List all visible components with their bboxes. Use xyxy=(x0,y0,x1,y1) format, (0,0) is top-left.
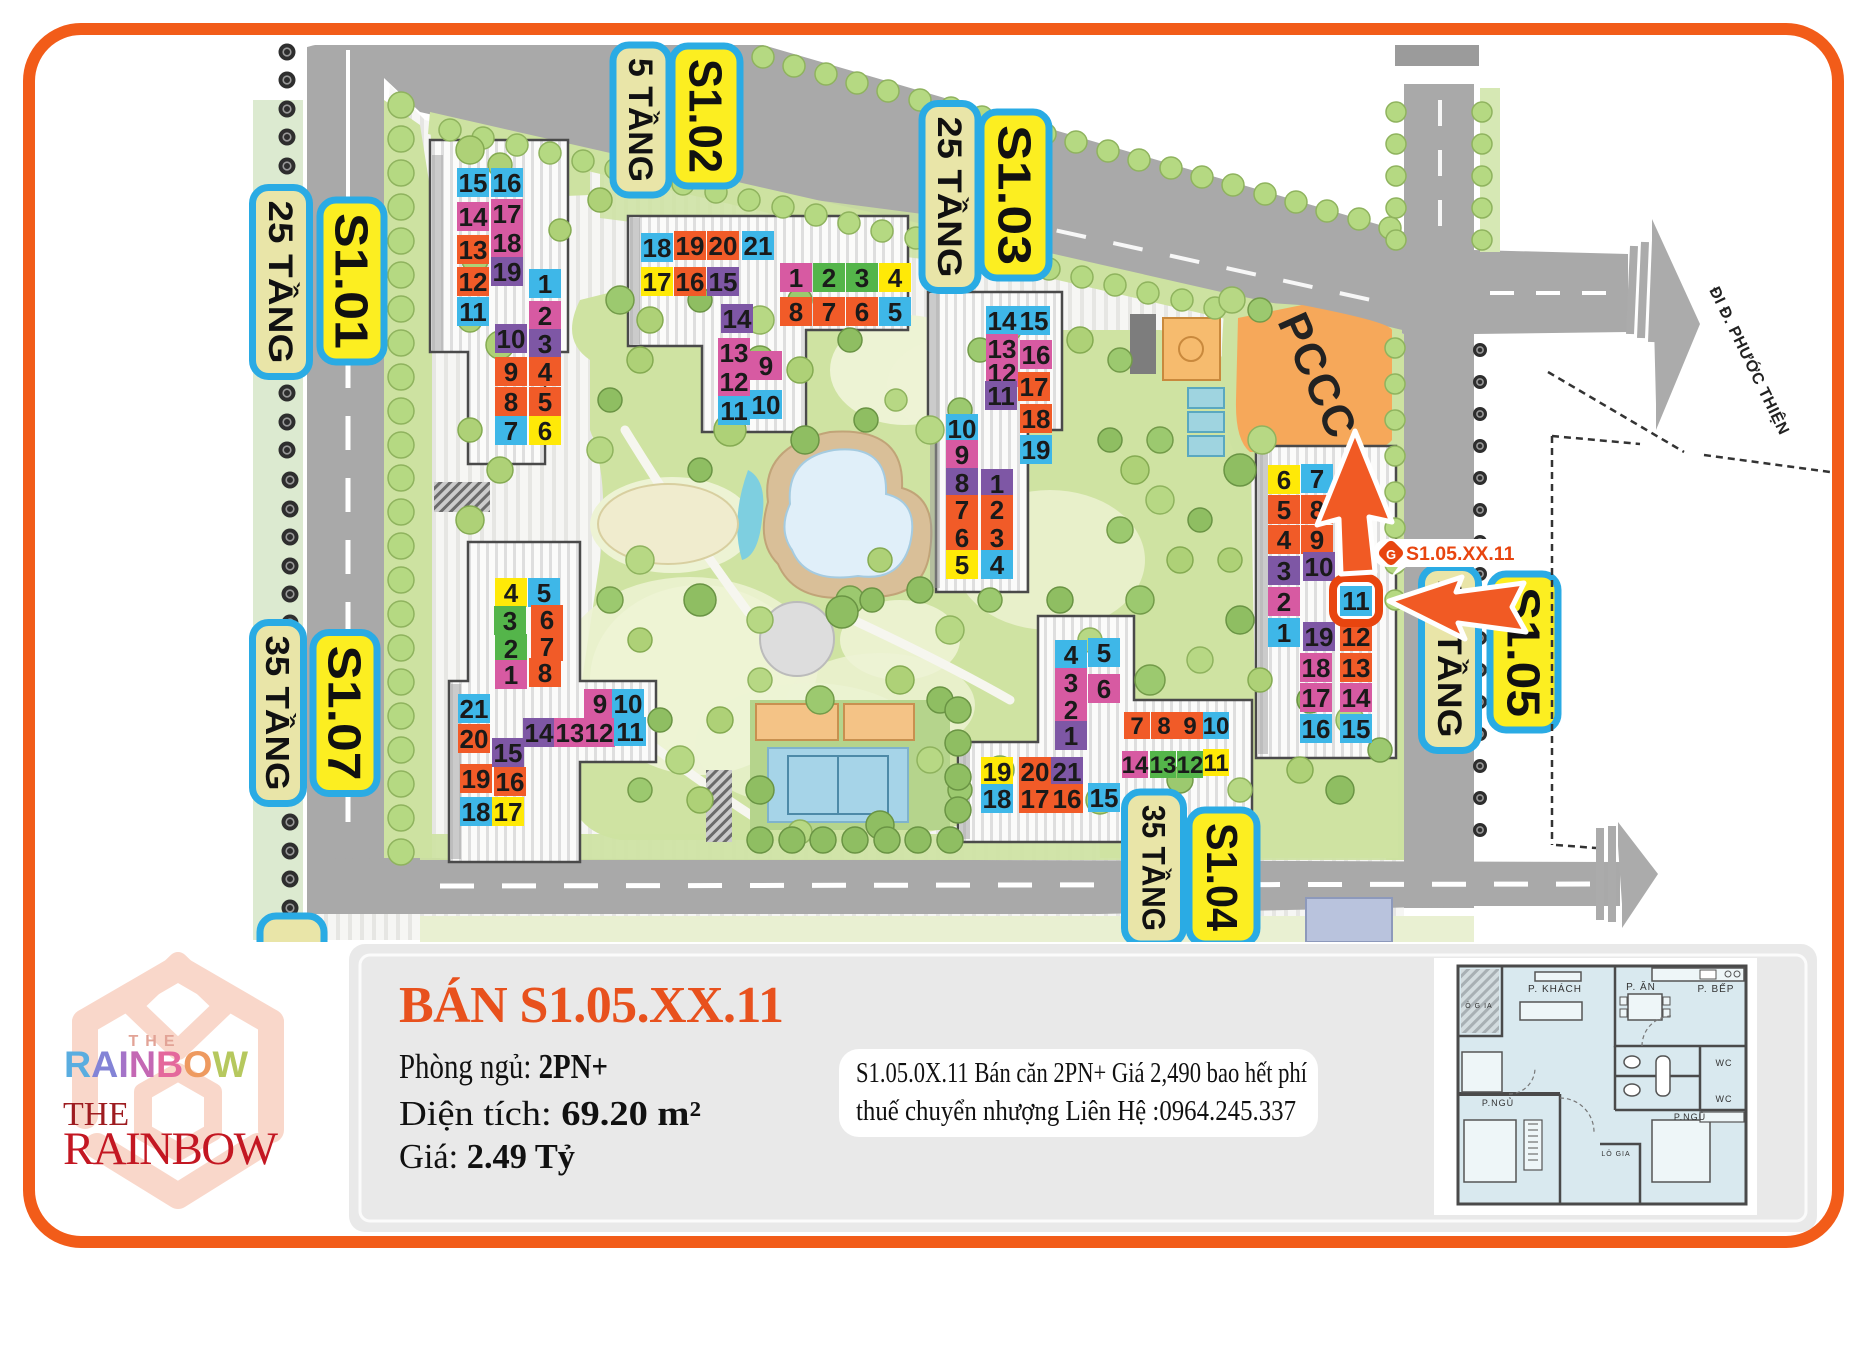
svg-text:8: 8 xyxy=(789,297,803,327)
svg-text:12: 12 xyxy=(720,367,749,397)
svg-text:G: G xyxy=(1386,547,1396,562)
svg-text:10: 10 xyxy=(614,689,643,719)
svg-text:5 TẦNG: 5 TẦNG xyxy=(621,58,659,182)
svg-text:1: 1 xyxy=(538,269,552,299)
svg-text:11: 11 xyxy=(1342,586,1370,616)
svg-text:13: 13 xyxy=(1150,752,1177,779)
svg-text:13: 13 xyxy=(1342,653,1371,683)
svg-text:21: 21 xyxy=(460,694,489,724)
svg-text:14: 14 xyxy=(723,304,752,334)
svg-text:18: 18 xyxy=(1302,653,1331,683)
svg-text:Diện tích: 69.20 m²: Diện tích: 69.20 m² xyxy=(399,1094,701,1133)
svg-text:17: 17 xyxy=(643,267,672,297)
svg-text:thuế chuyển nhượng Liên Hệ :09: thuế chuyển nhượng Liên Hệ :0964.245.337 xyxy=(856,1095,1296,1127)
svg-text:5: 5 xyxy=(1277,495,1291,525)
svg-text:10: 10 xyxy=(497,324,526,354)
svg-text:4: 4 xyxy=(1064,640,1079,670)
svg-text:4: 4 xyxy=(990,550,1005,580)
svg-text:S1.04: S1.04 xyxy=(1197,823,1246,931)
svg-text:14: 14 xyxy=(988,306,1017,336)
svg-text:3: 3 xyxy=(1277,556,1291,586)
svg-text:9: 9 xyxy=(1183,713,1196,740)
svg-text:4: 4 xyxy=(538,357,553,387)
svg-text:7: 7 xyxy=(822,297,836,327)
svg-text:3: 3 xyxy=(855,263,869,293)
svg-text:8: 8 xyxy=(504,387,518,417)
svg-text:11: 11 xyxy=(720,396,748,426)
svg-text:6: 6 xyxy=(538,416,552,446)
svg-text:5: 5 xyxy=(537,578,551,608)
svg-text:6: 6 xyxy=(855,297,869,327)
svg-text:6: 6 xyxy=(1097,674,1111,704)
svg-text:4: 4 xyxy=(888,263,903,293)
svg-text:2: 2 xyxy=(1277,587,1291,617)
svg-text:18: 18 xyxy=(643,233,672,263)
svg-text:12: 12 xyxy=(459,267,488,297)
svg-text:RAINBOW: RAINBOW xyxy=(63,1123,279,1175)
svg-text:P. ĂN: P. ĂN xyxy=(1626,980,1656,993)
svg-text:11: 11 xyxy=(616,717,644,747)
svg-text:17: 17 xyxy=(1302,683,1331,713)
svg-text:9: 9 xyxy=(955,440,969,470)
svg-text:18: 18 xyxy=(493,228,522,258)
svg-text:S1.05.XX.11: S1.05.XX.11 xyxy=(1406,543,1515,565)
svg-text:16: 16 xyxy=(1022,340,1051,370)
svg-text:20: 20 xyxy=(460,724,489,754)
svg-text:19: 19 xyxy=(983,757,1012,787)
svg-text:7: 7 xyxy=(504,416,518,446)
svg-text:9: 9 xyxy=(593,689,607,719)
svg-text:WC: WC xyxy=(1716,1094,1733,1104)
svg-text:9: 9 xyxy=(759,351,773,381)
svg-text:18: 18 xyxy=(983,784,1012,814)
svg-text:21: 21 xyxy=(744,231,773,261)
svg-text:1: 1 xyxy=(1064,721,1078,751)
svg-text:Ô G IA: Ô G IA xyxy=(1465,1001,1492,1010)
svg-text:5: 5 xyxy=(888,297,902,327)
svg-text:1: 1 xyxy=(1277,618,1291,648)
svg-text:Phòng ngủ: 2PN+: Phòng ngủ: 2PN+ xyxy=(399,1047,608,1086)
svg-text:7: 7 xyxy=(955,495,969,525)
svg-text:25 TẦNG: 25 TẦNG xyxy=(930,117,968,278)
svg-text:4: 4 xyxy=(1277,525,1292,555)
svg-text:19: 19 xyxy=(493,257,522,287)
svg-text:17: 17 xyxy=(493,199,522,229)
svg-text:6: 6 xyxy=(1277,465,1291,495)
svg-text:14: 14 xyxy=(459,202,488,232)
svg-text:1: 1 xyxy=(504,660,518,690)
svg-text:15: 15 xyxy=(709,267,738,297)
svg-text:7: 7 xyxy=(1130,713,1143,740)
svg-text:35 TẦNG: 35 TẦNG xyxy=(259,636,296,791)
svg-text:21: 21 xyxy=(1053,757,1082,787)
svg-text:18: 18 xyxy=(1022,404,1051,434)
svg-text:LÔ GIA: LÔ GIA xyxy=(1601,1149,1630,1158)
svg-text:16: 16 xyxy=(493,168,522,198)
svg-text:13: 13 xyxy=(556,718,585,748)
svg-text:Giá: 2.49 Tỷ: Giá: 2.49 Tỷ xyxy=(399,1137,575,1176)
svg-text:19: 19 xyxy=(1305,622,1334,652)
svg-text:11: 11 xyxy=(459,297,487,327)
svg-text:4: 4 xyxy=(504,578,519,608)
svg-text:10: 10 xyxy=(1305,552,1334,582)
svg-text:8: 8 xyxy=(955,468,969,498)
svg-text:15: 15 xyxy=(459,168,488,198)
svg-text:11: 11 xyxy=(1203,750,1228,777)
svg-text:18: 18 xyxy=(462,797,491,827)
svg-text:3: 3 xyxy=(538,329,552,359)
svg-text:P. BẾP: P. BẾP xyxy=(1698,982,1735,995)
svg-text:17: 17 xyxy=(494,797,523,827)
svg-text:2: 2 xyxy=(538,301,552,331)
svg-text:19: 19 xyxy=(1022,435,1051,465)
svg-text:14: 14 xyxy=(525,718,554,748)
svg-text:17: 17 xyxy=(1020,372,1049,402)
svg-text:P. KHÁCH: P. KHÁCH xyxy=(1528,982,1582,995)
svg-text:16: 16 xyxy=(676,267,705,297)
svg-text:20: 20 xyxy=(709,231,738,261)
svg-text:9: 9 xyxy=(1310,525,1324,555)
svg-text:S1.01: S1.01 xyxy=(325,213,377,349)
svg-text:10: 10 xyxy=(1203,713,1230,740)
svg-text:S1.07: S1.07 xyxy=(318,646,370,781)
svg-text:14: 14 xyxy=(1342,683,1371,713)
svg-text:5: 5 xyxy=(955,550,969,580)
svg-text:20: 20 xyxy=(1021,757,1050,787)
svg-text:6: 6 xyxy=(540,605,554,635)
svg-text:11: 11 xyxy=(987,381,1015,411)
svg-text:S1.02: S1.02 xyxy=(679,59,731,173)
svg-text:12: 12 xyxy=(1177,752,1204,779)
svg-text:2: 2 xyxy=(822,263,836,293)
svg-text:3: 3 xyxy=(990,523,1004,553)
svg-text:15: 15 xyxy=(1090,783,1119,813)
svg-text:9: 9 xyxy=(504,357,518,387)
svg-text:P.NGỦ: P.NGỦ xyxy=(1674,1111,1706,1122)
svg-text:7: 7 xyxy=(1310,464,1324,494)
svg-text:P.NGỦ: P.NGỦ xyxy=(1482,1097,1514,1108)
svg-text:15: 15 xyxy=(1342,714,1371,744)
svg-text:19: 19 xyxy=(462,764,491,794)
svg-text:16: 16 xyxy=(496,767,525,797)
svg-text:5: 5 xyxy=(1097,638,1111,668)
svg-text:17: 17 xyxy=(1021,784,1050,814)
svg-text:S1.03: S1.03 xyxy=(988,125,1040,265)
svg-text:6: 6 xyxy=(955,523,969,553)
svg-text:S1.05.0X.11 Bán căn 2PN+ Giá 2: S1.05.0X.11 Bán căn 2PN+ Giá 2,490 bao h… xyxy=(856,1057,1307,1089)
svg-text:16: 16 xyxy=(1053,784,1082,814)
svg-text:13: 13 xyxy=(459,235,488,265)
svg-text:2: 2 xyxy=(990,495,1004,525)
svg-text:3: 3 xyxy=(1064,668,1078,698)
svg-text:13: 13 xyxy=(720,338,749,368)
svg-text:12: 12 xyxy=(585,718,614,748)
svg-text:19: 19 xyxy=(676,231,705,261)
svg-text:RAINBOW: RAINBOW xyxy=(64,1044,248,1085)
svg-text:5: 5 xyxy=(538,387,552,417)
svg-text:14: 14 xyxy=(1122,752,1149,779)
svg-text:8: 8 xyxy=(538,658,552,688)
svg-text:1: 1 xyxy=(789,263,803,293)
svg-text:15: 15 xyxy=(494,738,523,768)
svg-text:35 TẦNG: 35 TẦNG xyxy=(1135,805,1171,931)
svg-text:10: 10 xyxy=(752,390,781,420)
svg-text:WC: WC xyxy=(1716,1058,1733,1068)
svg-text:BÁN S1.05.XX.11: BÁN S1.05.XX.11 xyxy=(399,976,784,1034)
svg-text:25 TẦNG: 25 TẦNG xyxy=(261,201,299,364)
svg-text:15: 15 xyxy=(1020,306,1049,336)
svg-text:8: 8 xyxy=(1157,713,1170,740)
svg-text:16: 16 xyxy=(1302,714,1331,744)
svg-text:3: 3 xyxy=(503,606,517,636)
